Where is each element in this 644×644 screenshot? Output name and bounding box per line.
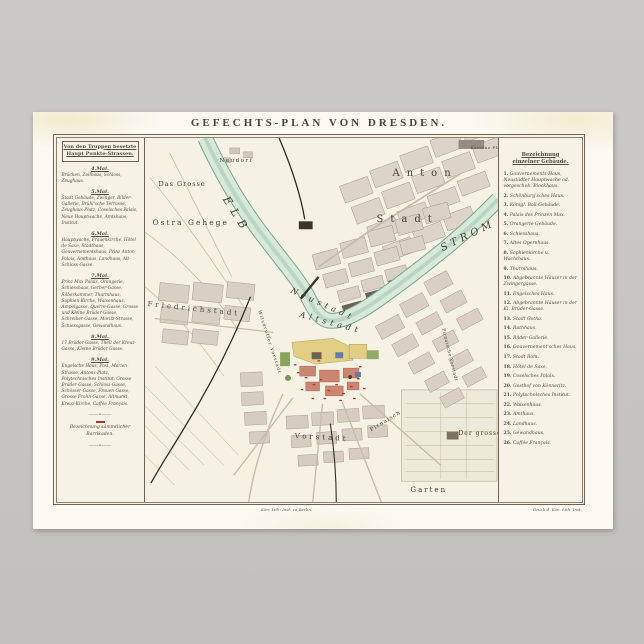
- label-kaserne-platz: Kaserne Platz: [471, 145, 498, 150]
- building-legend-item: 21. Polytechnisches Institut.: [504, 393, 578, 399]
- imprint-caption-right: Druck d. Kön. Lith. Inst.: [533, 507, 582, 512]
- legend-date-section: 7.Mai. Prinz Max Palais, Orangerie, Schi…: [62, 273, 139, 330]
- legend-section-text: Hauptwache, Frauenkirche, Hôtel de Saxe,…: [62, 238, 139, 269]
- legend-item-label: Schiesshaus.: [510, 232, 540, 237]
- legend-item-label: Gouvernements-Haus, Neustädter Hauptwach…: [504, 172, 570, 189]
- building-legend-item: 15. Bilder-Gallerie.: [504, 336, 578, 342]
- legend-item-number: 25.: [504, 431, 512, 436]
- building-legend-item: 3. Königl. Ball-Gebäude.: [504, 203, 578, 209]
- label-neudorf: Neudorf: [220, 158, 254, 164]
- legend-item-label: Stadt Rom.: [513, 355, 539, 360]
- building-legend-item: 1. Gouvernements-Haus, Neustädter Hauptw…: [504, 172, 578, 190]
- garten-palais: [446, 431, 458, 439]
- label-anton: Anton: [393, 168, 458, 179]
- building-legend-item: 19. Coselsches Palais.: [504, 374, 578, 380]
- building-legend-item: 8. Sophienkirche u. Wachthaus.: [504, 251, 578, 263]
- legend-item-number: 26.: [504, 441, 512, 446]
- legend-item-label: Gasthof von Könneritz.: [513, 384, 566, 389]
- legend-item-number: 5.: [504, 222, 509, 227]
- leipziger-bahnhof: [298, 221, 312, 229]
- legend-item-label: Abgebrannte Häuser in der Kl. Brüder-Gas…: [504, 301, 577, 312]
- building-legend-item: 17. Stadt Rom.: [504, 355, 578, 361]
- building-legend-item: 10. Abgebrannte Häuser in der Zwingergas…: [504, 276, 578, 288]
- label-ostra-gehege: Ostra Gehege: [153, 218, 229, 227]
- building-legend-item: 7. Altes Opernhaus.: [504, 241, 578, 247]
- legend-item-label: Amthaus.: [513, 412, 535, 417]
- legend-item-number: 2.: [504, 194, 509, 199]
- legend-divider: ——•——: [62, 412, 139, 418]
- right-legend-header: Bezeichnung einzelner Gebäude.: [504, 152, 578, 168]
- label-stadt: Stadt: [377, 214, 439, 225]
- building-legend-item: 24. Landhaus.: [504, 422, 578, 428]
- legend-item-label: Abgebrannte Häuser in der Zwingergasse.: [504, 276, 577, 287]
- building-legend-item: 13. Stadt Gotha.: [504, 317, 578, 323]
- building-legend-item: 4. Palais des Prinzen Max.: [504, 213, 578, 219]
- legend-section-text: 17 Brüder-Gasse, Theil der Kreuz-Gasse, …: [62, 341, 139, 353]
- imprint-caption-left: Kön: Lith: Inst: zu Berlin.: [261, 507, 312, 512]
- legend-item-number: 7.: [504, 241, 509, 246]
- legend-item-label: Palais des Prinzen Max.: [510, 213, 565, 218]
- legend-date-section: 9.Mai. Engelsche Haus, Post, Marien-Stra…: [62, 357, 139, 408]
- label-der-grosse: Der grosse: [459, 430, 498, 437]
- screenshot-root: { "scene": { "background_color": "#c8c6c…: [0, 0, 644, 644]
- legend-item-label: Bilder-Gallerie.: [513, 336, 549, 341]
- legend-date-heading: 5.Mai.: [62, 189, 139, 195]
- poster-title: GEFECHTS-PLAN VON DRESDEN.: [53, 117, 585, 129]
- building-legend-item: 6. Schiesshaus.: [504, 232, 578, 238]
- left-legend-header-line2: Haupt Punkte-Strassen.: [66, 151, 133, 157]
- legend-item-number: 12.: [504, 301, 512, 306]
- building-legend-item: 26. Caffée Français.: [504, 441, 578, 447]
- legend-item-label: Landhaus.: [513, 422, 537, 427]
- legend-item-number: 8.: [504, 251, 509, 256]
- building-legend-item: 18. Hôtel de Saxe.: [504, 365, 578, 371]
- legend-item-number: 24.: [504, 422, 512, 427]
- legend-item-number: 23.: [504, 412, 512, 417]
- legend-item-label: Waisenhaus.: [513, 403, 542, 408]
- map-frame: Von den Truppen besetzte Haupt Punkte-St…: [53, 134, 585, 505]
- legend-item-label: Schönburg'sches Haus.: [510, 194, 565, 199]
- building-legend-item: 16. Gouvernement'sches Haus.: [504, 345, 578, 351]
- legend-item-number: 16.: [504, 345, 512, 350]
- legend-item-number: 14.: [504, 326, 512, 331]
- building-legend-item: 25. Gewandhaus.: [504, 431, 578, 437]
- legend-section-text: Engelsche Haus, Post, Marien-Strasse, An…: [62, 364, 139, 408]
- label-das-grosse: Das Grosse: [159, 180, 206, 188]
- legend-item-number: 10.: [504, 276, 512, 281]
- legend-item-label: Sophienkirche u. Wachthaus.: [504, 251, 550, 262]
- left-legend-header-line1: Von den Truppen besetzte: [64, 144, 137, 150]
- building-legend-item: 11. Engelsches Haus.: [504, 292, 578, 298]
- legend-date-heading: 4.Mai.: [62, 166, 139, 172]
- legend-item-label: Hôtel de Saxe.: [513, 365, 547, 370]
- legend-item-number: 11.: [504, 292, 512, 297]
- legend-item-number: 20.: [504, 384, 512, 389]
- legend-item-label: Orangerie-Gebäude.: [510, 222, 557, 227]
- left-legend-header: Von den Truppen besetzte Haupt Punkte-St…: [62, 141, 139, 162]
- legend-item-number: 17.: [504, 355, 512, 360]
- legend-item-label: Thurmhaus.: [510, 267, 538, 272]
- label-garten: Garten: [411, 486, 448, 494]
- legend-date-section: 4.Mai. Brücken, Zollhaus, Schloss, Zeugh…: [62, 166, 139, 185]
- left-legend: Von den Truppen besetzte Haupt Punkte-St…: [57, 138, 145, 502]
- legend-section-text: Prinz Max Palais, Orangerie, Schiesshaus…: [62, 280, 139, 330]
- building-legend-item: 2. Schönburg'sches Haus.: [504, 194, 578, 200]
- building-legend-item: 9. Thurmhaus.: [504, 267, 578, 273]
- legend-item-label: Polytechnisches Institut.: [513, 393, 570, 398]
- legend-item-label: Gewandhaus.: [513, 431, 544, 436]
- frauenkirche: [348, 375, 352, 379]
- building-legend-item: 12. Abgebrannte Häuser in der Kl. Brüder…: [504, 301, 578, 313]
- legend-item-label: Stadt Gotha.: [513, 317, 542, 322]
- legend-item-label: Coselsches Palais.: [513, 374, 555, 379]
- legend-item-number: 6.: [504, 232, 509, 237]
- legend-section-text: Brücken, Zollhaus, Schloss, Zeughaus.: [62, 173, 139, 185]
- legend-item-number: 13.: [504, 317, 512, 322]
- legend-item-number: 9.: [504, 267, 509, 272]
- legend-item-number: 15.: [504, 336, 512, 341]
- legend-item-label: Königl. Ball-Gebäude.: [510, 203, 561, 208]
- legend-item-number: 21.: [504, 393, 512, 398]
- right-legend-header-line2: einzelner Gebäude.: [504, 159, 578, 167]
- building-legend-item: 20. Gasthof von Könneritz.: [504, 384, 578, 390]
- building-legend-item: 14. Rathhaus.: [504, 326, 578, 332]
- legend-date-section: 8.Mai. 17 Brüder-Gasse, Theil der Kreuz-…: [62, 334, 139, 353]
- legend-item-number: 19.: [504, 374, 512, 379]
- legend-date-section: 5.Mai. Stadt Gebäude, Zwinger, Bilder-Ga…: [62, 189, 139, 227]
- map-poster: GEFECHTS-PLAN VON DRESDEN. Von den Trupp…: [33, 112, 613, 529]
- legend-item-number: 22.: [504, 403, 512, 408]
- map-area: Neudorf Das Grosse Ostra Gehege ELB STRO…: [145, 138, 498, 502]
- legend-date-heading: 9.Mai.: [62, 357, 139, 363]
- legend-item-label: Caffée Français.: [513, 441, 551, 446]
- left-legend-sections: 4.Mai. Brücken, Zollhaus, Schloss, Zeugh…: [62, 166, 139, 408]
- right-legend: Bezeichnung einzelner Gebäude. 1. Gouver…: [498, 138, 582, 502]
- barricade-symbol: [96, 421, 105, 424]
- map-frame-inner: Von den Truppen besetzte Haupt Punkte-St…: [56, 137, 583, 503]
- legend-divider-bottom: ——•——: [62, 443, 139, 449]
- barricade-note: Bezeichnung sämmtlicher Barrikaden.: [62, 425, 139, 439]
- legend-date-heading: 6.Mai.: [62, 231, 139, 237]
- building-legend-item: 22. Waisenhaus.: [504, 403, 578, 409]
- legend-item-label: Engelsches Haus.: [513, 292, 554, 297]
- legend-date-heading: 7.Mai.: [62, 273, 139, 279]
- legend-item-number: 4.: [504, 213, 509, 218]
- legend-item-number: 3.: [504, 203, 509, 208]
- building-legend-item: 5. Orangerie-Gebäude.: [504, 222, 578, 228]
- legend-item-label: Altes Opernhaus.: [510, 241, 550, 246]
- building-legend-item: 23. Amthaus.: [504, 412, 578, 418]
- legend-item-label: Rathhaus.: [513, 326, 537, 331]
- legend-item-label: Gouvernement'sches Haus.: [513, 345, 577, 350]
- legend-item-number: 18.: [504, 365, 512, 370]
- legend-section-text: Stadt Gebäude, Zwinger, Bilder-Gallerie,…: [62, 196, 139, 227]
- legend-item-number: 1.: [504, 172, 509, 177]
- legend-date-section: 6.Mai. Hauptwache, Frauenkirche, Hôtel d…: [62, 231, 139, 269]
- right-legend-items: 1. Gouvernements-Haus, Neustädter Hauptw…: [504, 172, 578, 447]
- legend-date-heading: 8.Mai.: [62, 334, 139, 340]
